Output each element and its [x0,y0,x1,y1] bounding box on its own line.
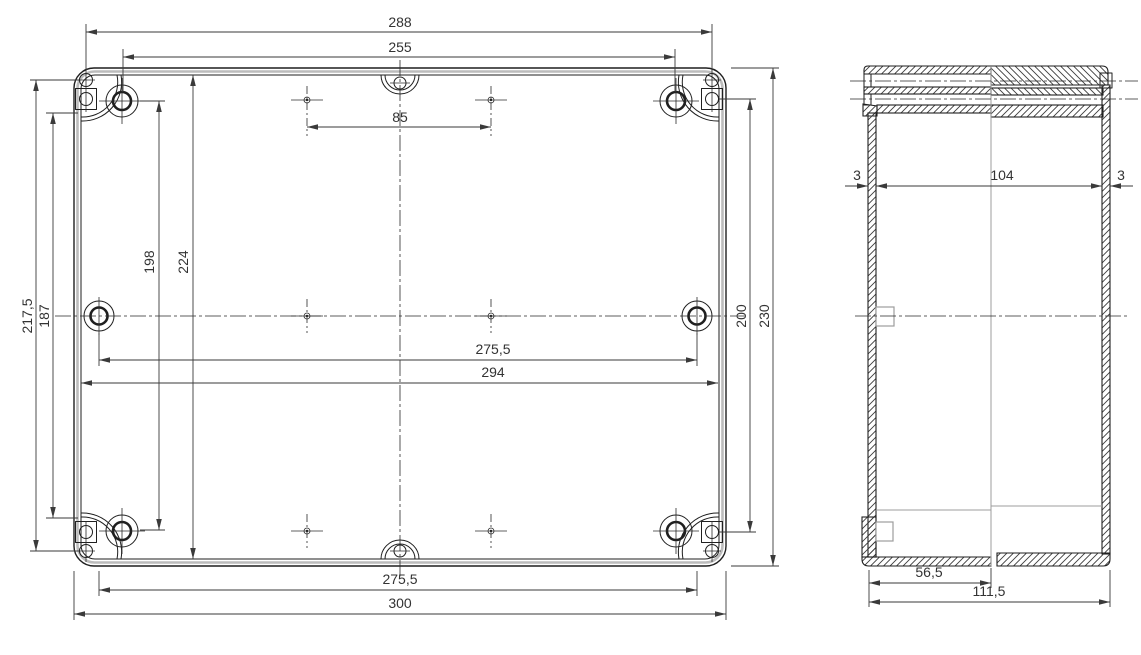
technical-drawing-canvas: 288 255 85 217,5 187 198 [0,0,1141,655]
dim-label-275-5-bottom: 275,5 [382,571,417,587]
dim-187: 187 [36,113,78,518]
target-marks [291,97,507,534]
dim-label-275-5-mid: 275,5 [475,341,510,357]
dim-label-111-5: 111,5 [973,583,1006,599]
side-view: 3 104 3 56,5 111,5 [845,66,1138,607]
centerlines [55,60,745,578]
lid-top-left-band [864,66,991,74]
wall-boss-bottom [876,522,893,541]
dim-111-5: 111,5 [869,570,1110,607]
seal-band-right [991,88,1103,95]
dim-198: 198 [140,101,165,530]
flange-band-left [877,105,991,113]
dim-85: 85 [307,109,491,127]
dim-label-198: 198 [141,250,157,274]
dim-label-217-5: 217,5 [19,298,35,333]
seal-band-left [864,87,991,94]
flange-band-right [991,105,1103,117]
enclosure-drawing: 288 255 85 217,5 187 198 [0,0,1141,655]
dim-104: 104 [876,167,1102,186]
dim-275-5-bottom: 275,5 [99,571,697,596]
dim-255: 255 [123,39,675,92]
boss-top-right [653,78,699,124]
dim-3-left: 3 [845,167,868,186]
top-view: 288 255 85 217,5 187 198 [19,14,779,620]
dim-label-104: 104 [990,167,1014,183]
dim-label-56-5: 56,5 [915,564,942,580]
dim-label-3-right: 3 [1117,167,1125,183]
dim-224: 224 [175,75,193,559]
wall-boss-mid [876,307,894,326]
boss-top-left [99,78,145,124]
dim-label-187: 187 [36,304,52,328]
dim-275-5-mid: 275,5 [99,333,697,366]
dim-200: 200 [719,99,756,532]
dim-label-224: 224 [175,250,191,274]
right-wall [1102,85,1110,554]
dim-label-230: 230 [756,304,772,328]
dim-294: 294 [81,364,718,383]
dim-label-255: 255 [388,39,412,55]
dim-label-288: 288 [388,14,412,30]
left-wall [868,113,876,557]
left-wall-foot [862,517,876,557]
boss-bottom-right [653,508,699,554]
dim-3-right: 3 [1110,167,1133,186]
dim-label-300: 300 [388,595,412,611]
lid-top-right-band [991,66,1108,85]
dim-label-3-left: 3 [853,167,861,183]
dim-label-85: 85 [392,109,408,125]
boss-bottom-left [99,508,145,554]
dim-label-200: 200 [733,304,749,328]
floor-right [997,553,1110,566]
dim-label-294: 294 [481,364,505,380]
